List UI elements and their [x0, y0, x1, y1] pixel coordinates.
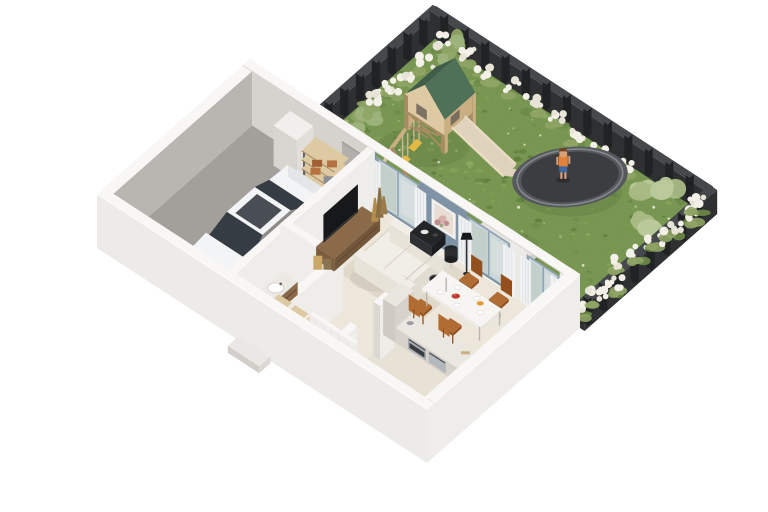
- floor-plan-render: [0, 0, 768, 512]
- isometric-scene: [0, 0, 768, 512]
